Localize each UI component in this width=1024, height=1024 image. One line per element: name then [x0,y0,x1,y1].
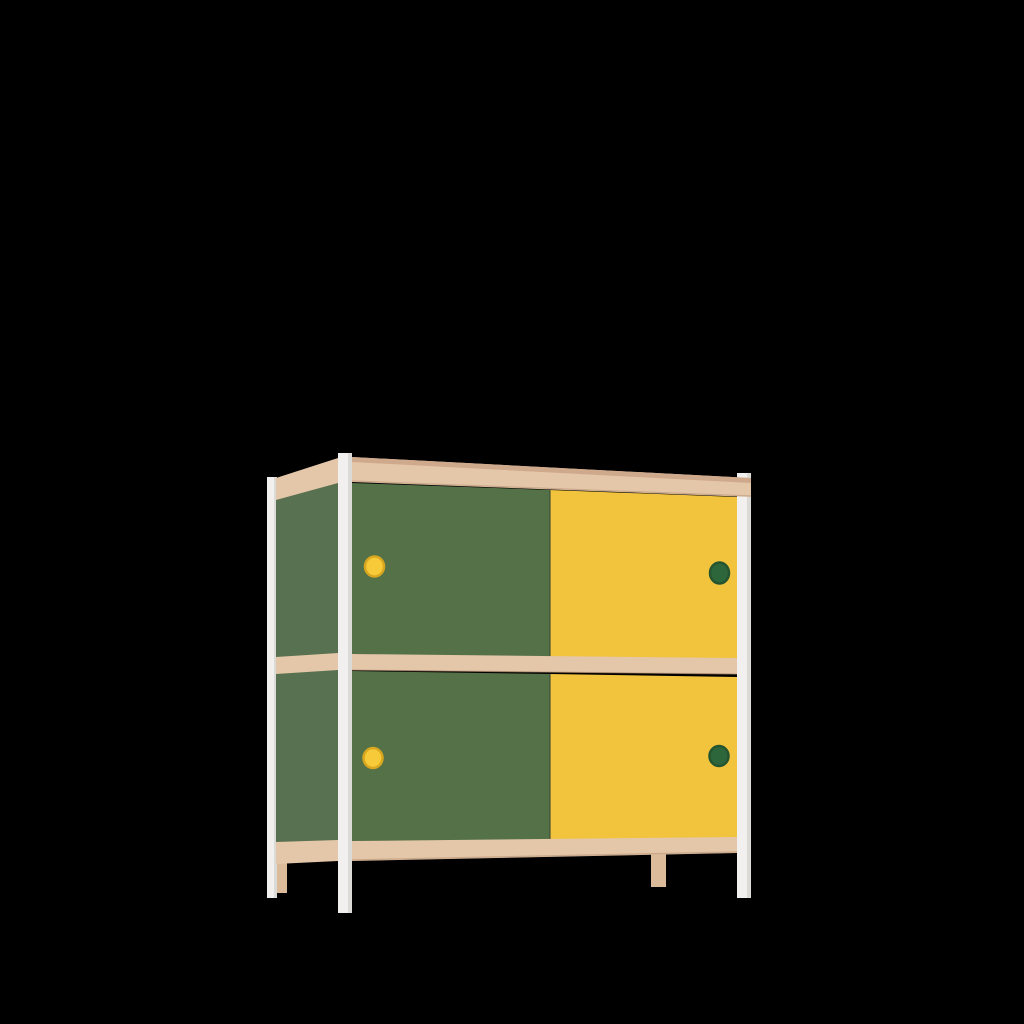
front-right-leg-shade [747,473,751,898]
product-image [0,0,1024,1024]
handle-bottom-left-yellow [364,748,383,768]
side-bottom-rail [276,840,338,864]
handle-bottom-right-green [710,746,729,766]
handle-top-right-green [710,563,729,584]
handle-top-left-yellow [365,557,384,577]
front-left-leg-shade [348,453,352,913]
cabinet-render [0,0,1024,1024]
